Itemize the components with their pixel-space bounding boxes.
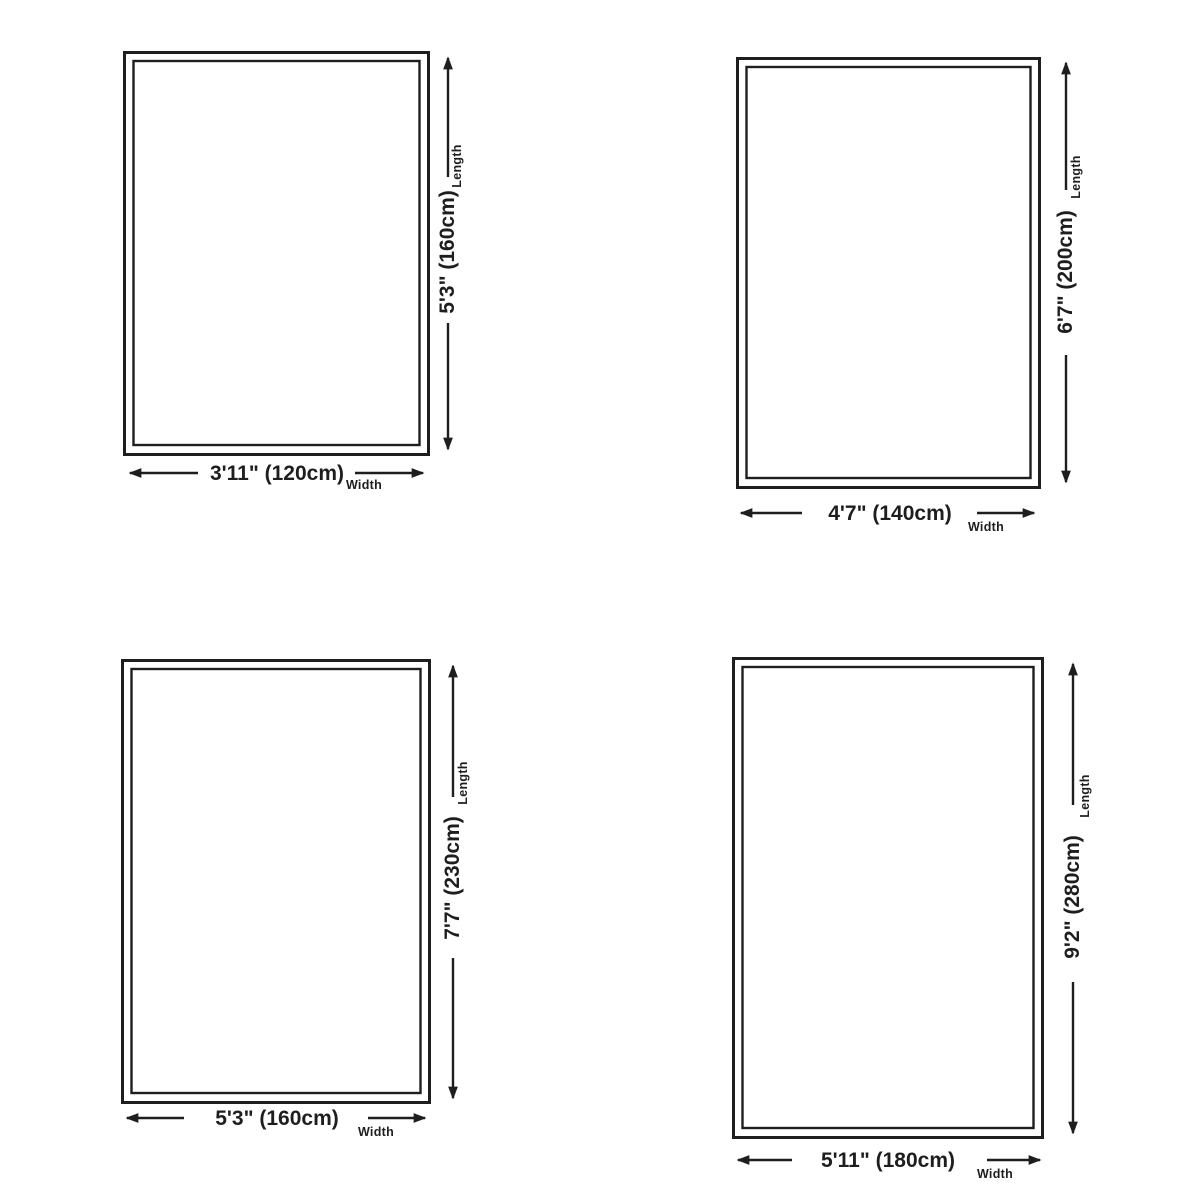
width-caption: Width <box>977 1167 1013 1181</box>
width-value: 5'3" (160cm) <box>215 1107 339 1130</box>
rug-outline-inner <box>132 669 421 1093</box>
width-value: 5'11" (180cm) <box>821 1149 955 1172</box>
rug-size-diagram-sheet: Length 5'3" (160cm) 3'11" (120cm) Width … <box>0 0 1200 1200</box>
width-value: 4'7" (140cm) <box>828 502 952 525</box>
rug-size-diagram: Length 5'3" (160cm) 3'11" (120cm) Width … <box>0 0 1200 1200</box>
rug-outline-outer <box>125 53 429 455</box>
rug-panel-1: Length 5'3" (160cm) 3'11" (120cm) Width <box>125 53 465 493</box>
width-caption: Width <box>358 1125 394 1139</box>
length-caption: Length <box>456 761 470 804</box>
rug-outline-outer <box>734 659 1043 1138</box>
width-caption: Width <box>968 520 1004 534</box>
length-caption: Length <box>450 144 464 187</box>
rug-outline-inner <box>743 667 1034 1128</box>
width-caption: Width <box>346 478 382 492</box>
rug-outline-outer <box>123 661 430 1103</box>
length-caption: Length <box>1069 155 1083 198</box>
width-value: 3'11" (120cm) <box>210 462 344 485</box>
rug-outline-outer <box>738 59 1040 488</box>
rug-panel-2: Length 6'7" (200cm) 4'7" (140cm) Width <box>738 59 1084 535</box>
length-value: 9'2" (280cm) <box>1061 835 1084 959</box>
rug-panel-3: Length 7'7" (230cm) 5'3" (160cm) Width <box>123 661 471 1140</box>
rug-outline-inner <box>134 61 420 445</box>
rug-outline-inner <box>747 67 1031 478</box>
length-value: 7'7" (230cm) <box>441 816 464 940</box>
length-value: 6'7" (200cm) <box>1054 210 1077 334</box>
length-caption: Length <box>1078 774 1092 817</box>
rug-panel-4: Length 9'2" (280cm) 5'11" (180cm) Width <box>734 659 1093 1182</box>
length-value: 5'3" (160cm) <box>436 190 459 314</box>
